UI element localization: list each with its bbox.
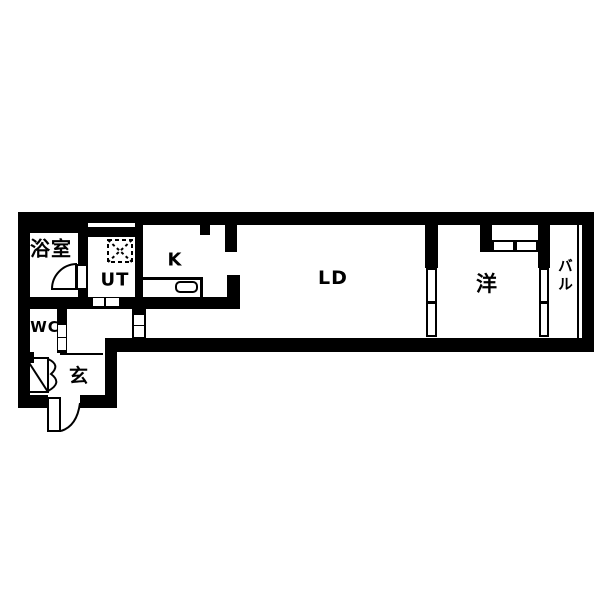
entry-door-swing — [61, 403, 80, 431]
ut-sliding-door-panel-1 — [93, 298, 104, 306]
wc-door-panel-2 — [58, 338, 66, 350]
room-label-living-dining: LD — [318, 269, 348, 289]
top-wall-ut-outer — [88, 212, 135, 223]
closet-door-panel-2 — [515, 240, 538, 252]
room-label-western-room: 洋 — [476, 273, 498, 295]
balcony-window-panel-1 — [539, 268, 549, 303]
right-outer-wall — [582, 212, 594, 352]
ut-window-sill — [88, 227, 135, 237]
room-label-bath: 浴室 — [30, 239, 72, 260]
room-label-kitchen: K — [168, 252, 183, 271]
kitchen-sink — [175, 281, 198, 293]
entry-right-outer-wall — [105, 338, 117, 408]
ld-western-door-panel-2 — [426, 302, 437, 337]
hall-door-panel-1 — [134, 315, 144, 325]
room-label-wc: WC — [30, 320, 60, 336]
ut-sliding-door-panel-2 — [106, 298, 119, 306]
ld-western-door-panel-1 — [426, 268, 437, 303]
kitchen-column — [225, 223, 237, 252]
closet-left-stub — [480, 225, 492, 252]
ld-western-wall-upper — [425, 225, 438, 268]
balcony-window-panel-2 — [539, 302, 549, 337]
service-bottom-wall — [18, 297, 240, 309]
room-label-balcony: バル — [556, 258, 572, 294]
closet-door-panel-1 — [492, 240, 515, 252]
balcony-rail-line — [577, 225, 579, 338]
wc-door-fold — [48, 359, 56, 391]
bath-door-swing — [52, 264, 76, 289]
room-label-ut: UT — [101, 272, 130, 291]
bottom-wall-main — [105, 338, 594, 352]
washer-cross — [108, 240, 132, 262]
washer-outline — [108, 240, 132, 262]
kitchen-top-stub — [200, 223, 210, 235]
entry-step-line — [60, 353, 103, 355]
floorplan: 浴室UTKLD洋バルWC玄 — [0, 0, 600, 600]
bath-right-wall-upper — [78, 225, 88, 265]
left-outer-wall — [18, 212, 30, 408]
western-balcony-wall — [538, 213, 550, 268]
room-label-entrance: 玄 — [69, 367, 89, 387]
wc-bottom-wall — [18, 352, 34, 363]
bath-door-leaf — [76, 264, 88, 290]
hall-door-panel-2 — [134, 326, 144, 337]
kitchen-ld-wall-stub — [227, 275, 240, 309]
entry-door-leaf — [47, 397, 61, 432]
entry-bottom-wall-left — [18, 395, 48, 408]
